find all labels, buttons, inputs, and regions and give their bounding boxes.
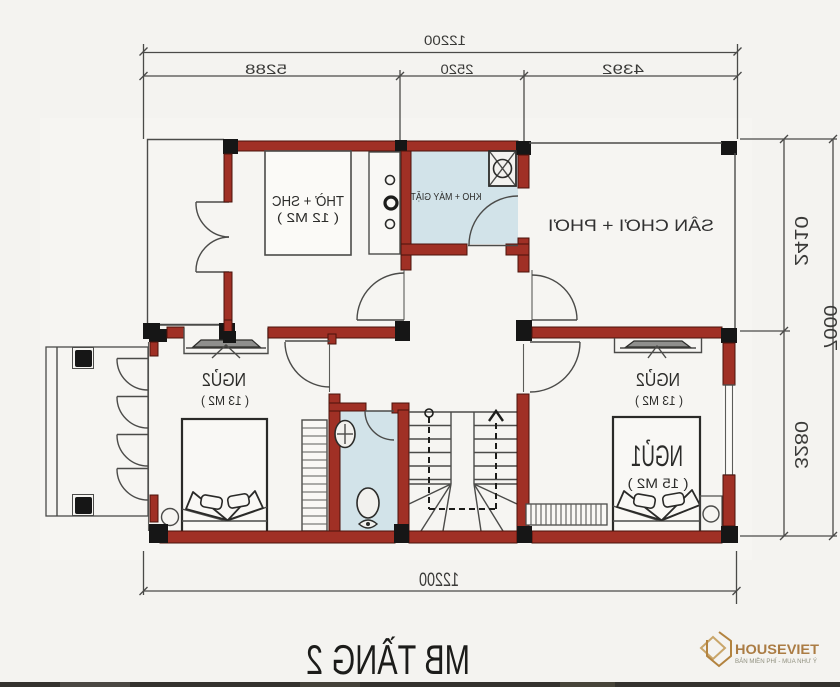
svg-text:NGỦ2: NGỦ2 xyxy=(202,369,246,390)
svg-text:2410: 2410 xyxy=(791,216,811,266)
svg-text:12200: 12200 xyxy=(419,570,459,591)
svg-text:THỜ + SHC: THỜ + SHC xyxy=(272,193,344,210)
svg-text:5288: 5288 xyxy=(245,62,287,77)
svg-text:KHO + MÁY GIẶT: KHO + MÁY GIẶT xyxy=(410,190,481,203)
svg-text:NGỦ2: NGỦ2 xyxy=(636,369,680,390)
svg-text:12200: 12200 xyxy=(424,33,466,48)
svg-text:2520: 2520 xyxy=(441,62,474,77)
svg-text:HOUSEVIET: HOUSEVIET xyxy=(735,641,819,657)
svg-text:MB TẦNG 2: MB TẦNG 2 xyxy=(306,636,470,683)
svg-text:4392: 4392 xyxy=(602,62,644,77)
svg-text:( 12 M2 ): ( 12 M2 ) xyxy=(277,210,339,225)
svg-text:7000: 7000 xyxy=(820,305,840,351)
svg-text:3280: 3280 xyxy=(791,421,811,469)
svg-text:( 13 M2 ): ( 13 M2 ) xyxy=(201,394,249,408)
svg-text:SÂN CHƠI + PHƠI: SÂN CHƠI + PHƠI xyxy=(548,216,714,235)
svg-text:BẢN MIỀN PHÍ - MUA NHƯ Ý: BẢN MIỀN PHÍ - MUA NHƯ Ý xyxy=(735,658,817,665)
svg-text:( 15 M2 ): ( 15 M2 ) xyxy=(628,475,689,491)
svg-text:NGỦ1: NGỦ1 xyxy=(631,439,683,473)
svg-text:( 13 M2 ): ( 13 M2 ) xyxy=(635,394,683,408)
